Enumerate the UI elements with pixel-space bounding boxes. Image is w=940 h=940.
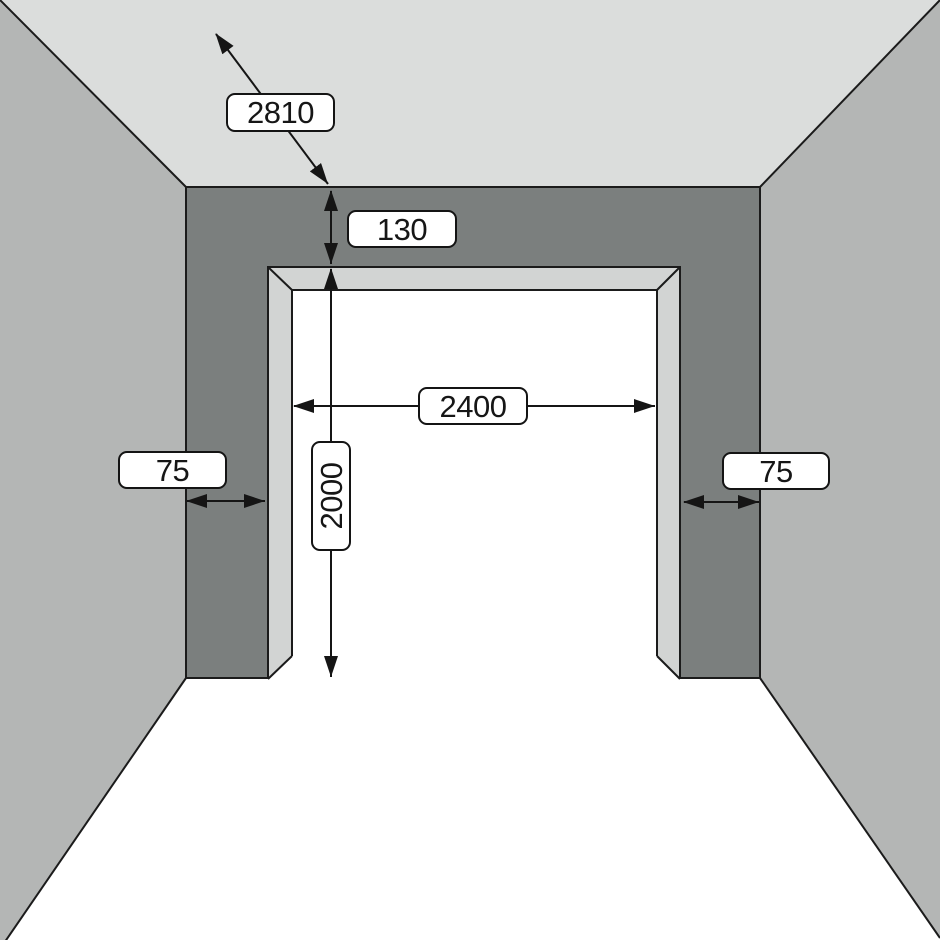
opening-reveal-left (268, 267, 292, 679)
dim-label-side-room-left: 75 (118, 451, 227, 489)
opening-reveal-top (268, 267, 680, 290)
opening-reveal-right (657, 267, 680, 679)
dim-label-headroom: 130 (347, 210, 457, 248)
dim-label-opening-height: 2000 (311, 441, 351, 551)
perspective-room-diagram: 2810 130 2400 2000 75 75 (0, 0, 940, 940)
dim-label-opening-width: 2400 (418, 387, 528, 425)
dim-label-depth: 2810 (226, 93, 335, 132)
dim-label-side-room-right: 75 (722, 452, 830, 490)
